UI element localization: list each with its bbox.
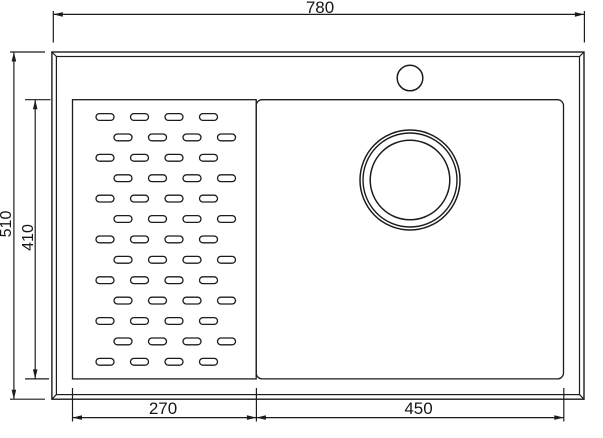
svg-text:450: 450 (404, 399, 432, 418)
svg-text:510: 510 (0, 211, 15, 238)
svg-text:410: 410 (20, 224, 37, 251)
svg-text:270: 270 (149, 399, 177, 418)
svg-text:780: 780 (306, 0, 334, 17)
